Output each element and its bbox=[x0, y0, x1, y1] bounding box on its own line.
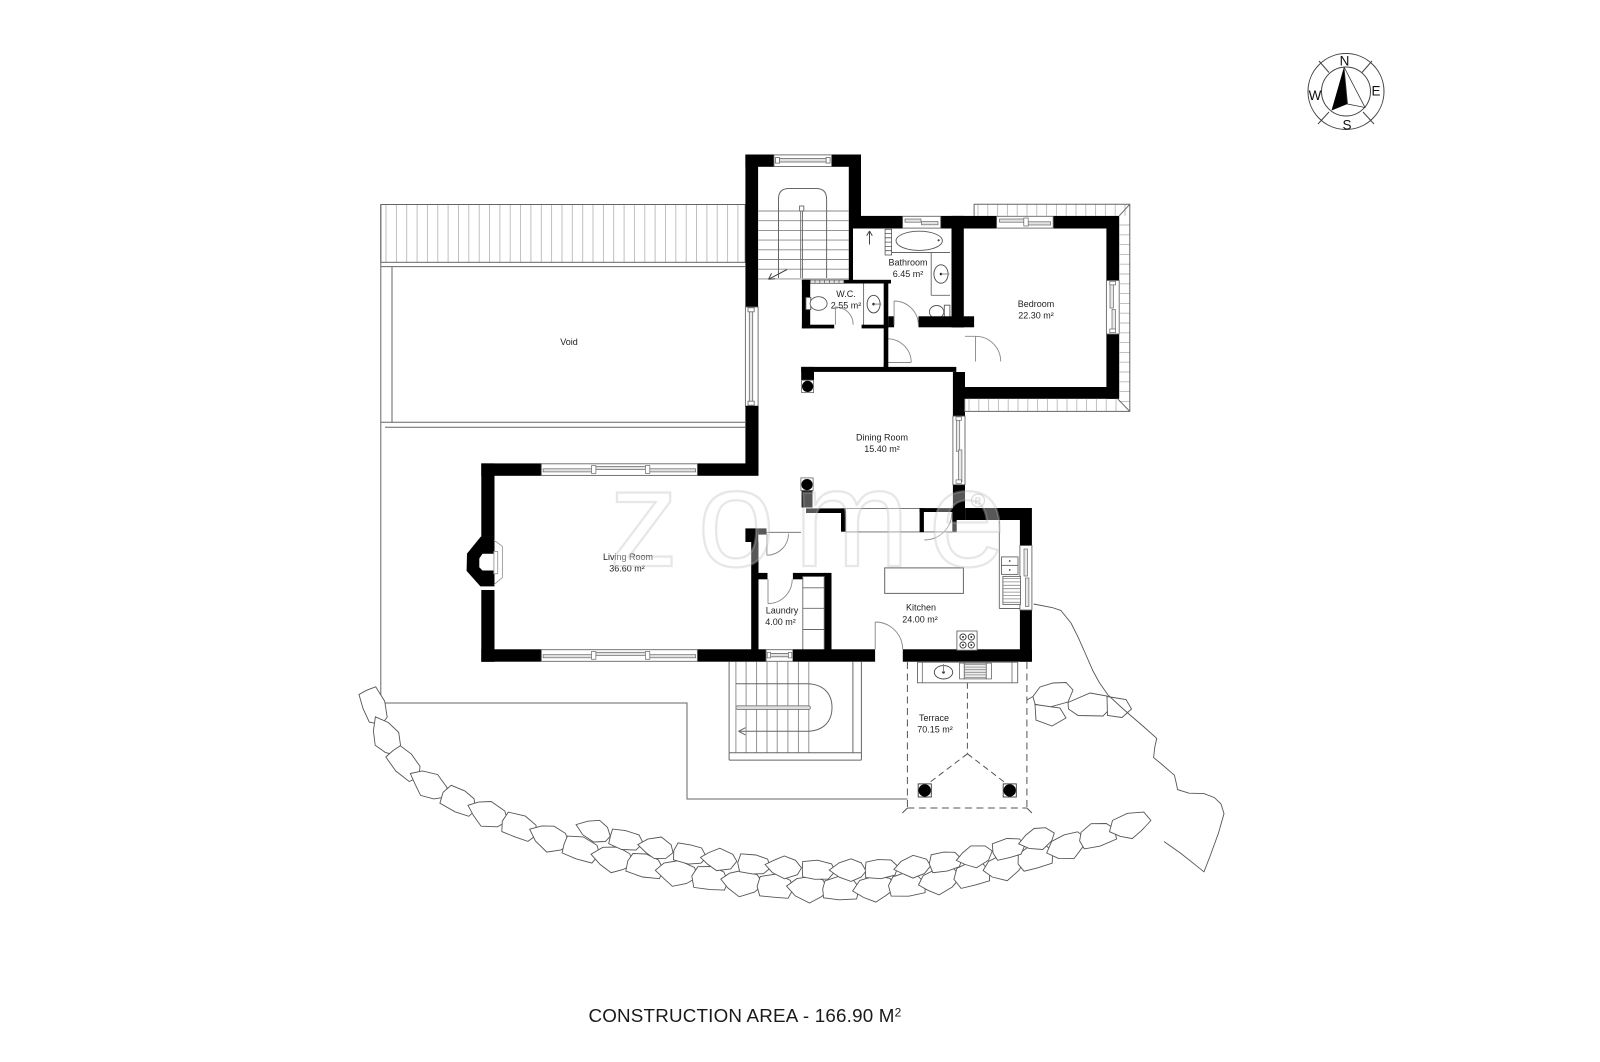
svg-text:S: S bbox=[1342, 118, 1351, 133]
svg-text:Bedroom: Bedroom bbox=[1018, 299, 1055, 309]
svg-text:Kitchen: Kitchen bbox=[906, 603, 936, 613]
svg-text:Terrace: Terrace bbox=[919, 713, 949, 723]
svg-text:Laundry: Laundry bbox=[766, 606, 799, 616]
svg-text:E: E bbox=[1371, 84, 1380, 99]
svg-text:70.15 m²: 70.15 m² bbox=[917, 725, 953, 735]
svg-text:Bathroom: Bathroom bbox=[888, 258, 927, 268]
svg-text:W: W bbox=[1309, 88, 1322, 103]
svg-text:zome: zome bbox=[609, 441, 1025, 596]
svg-text:24.00 m²: 24.00 m² bbox=[902, 615, 938, 625]
svg-text:CONSTRUCTION AREA - 166.90 M2: CONSTRUCTION AREA - 166.90 M2 bbox=[588, 1005, 901, 1026]
svg-text:4.00 m²: 4.00 m² bbox=[765, 617, 796, 627]
svg-text:22.30 m²: 22.30 m² bbox=[1018, 311, 1054, 321]
svg-text:R: R bbox=[975, 496, 982, 506]
svg-text:W.C.: W.C. bbox=[836, 289, 856, 299]
svg-text:2.55 m²: 2.55 m² bbox=[831, 301, 862, 311]
svg-text:6.45 m²: 6.45 m² bbox=[893, 269, 924, 279]
svg-text:N: N bbox=[1340, 54, 1350, 69]
svg-text:Void: Void bbox=[560, 337, 578, 347]
